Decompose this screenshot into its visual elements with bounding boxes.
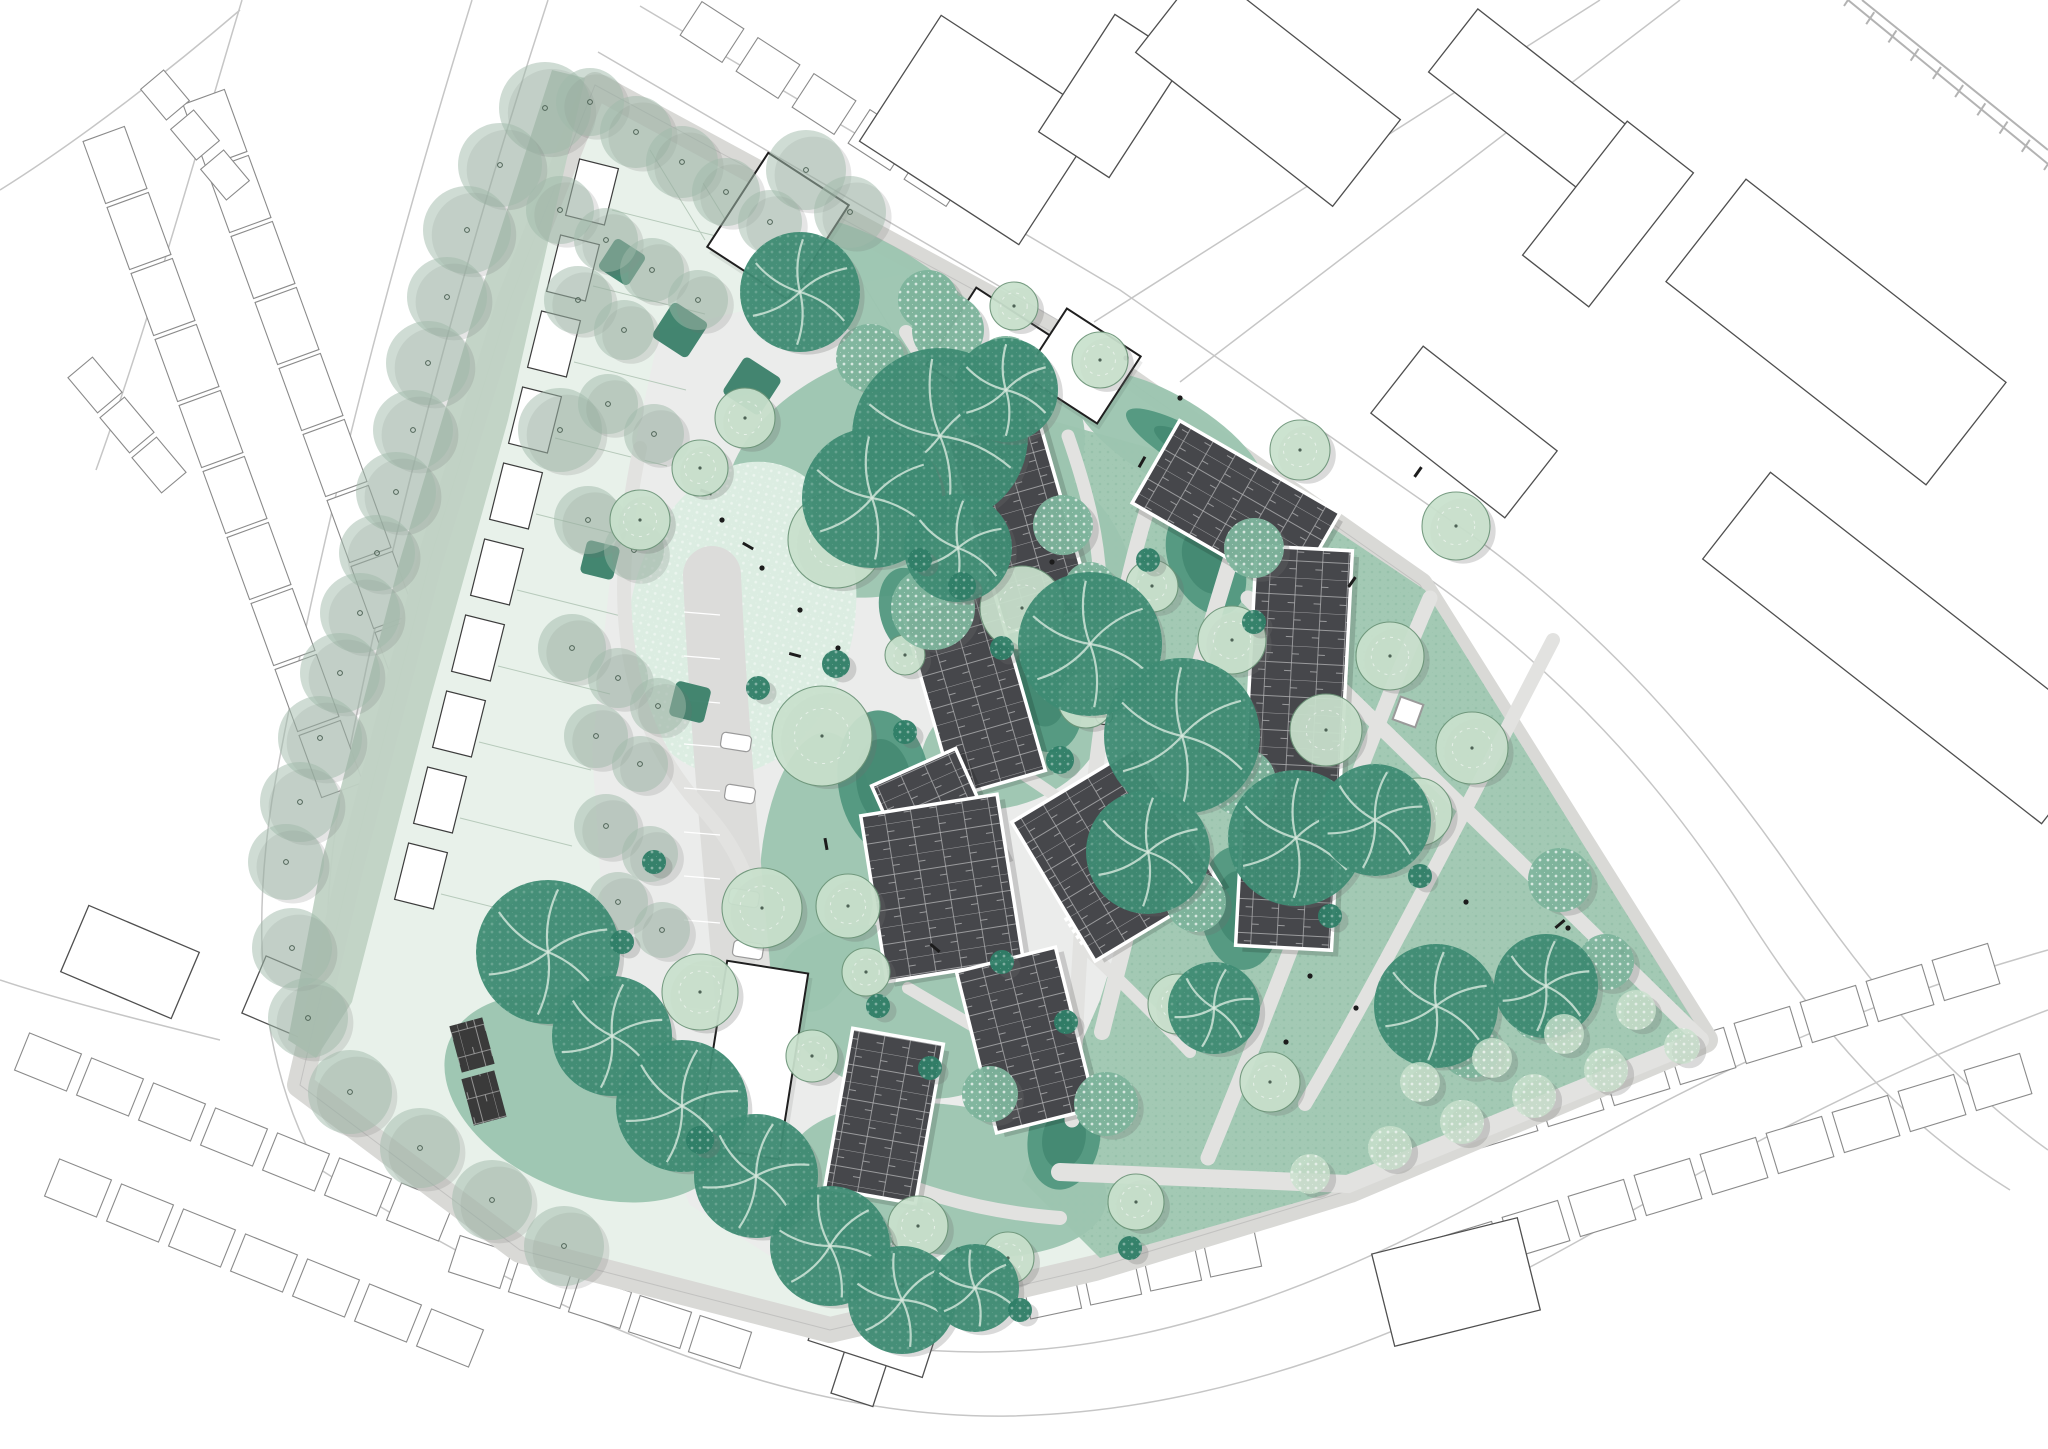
tree-trunk-mark bbox=[638, 518, 641, 521]
tree-trunk-mark bbox=[1268, 1080, 1271, 1083]
shrub-texture bbox=[1318, 904, 1342, 928]
orchard-tree-texture bbox=[1440, 1100, 1484, 1144]
shrub-texture bbox=[1046, 746, 1074, 774]
street-tree bbox=[630, 678, 686, 734]
person-marker bbox=[719, 517, 724, 522]
street-tree bbox=[452, 1160, 532, 1240]
person-marker bbox=[797, 607, 802, 612]
street-tree bbox=[814, 176, 886, 248]
street-tree bbox=[380, 1108, 460, 1188]
tree-trunk-mark bbox=[698, 990, 701, 993]
tree-trunk-mark bbox=[1230, 638, 1233, 641]
street-tree bbox=[386, 321, 470, 405]
person-marker bbox=[1283, 1039, 1288, 1044]
person-marker bbox=[1177, 395, 1182, 400]
tree-trunk-mark bbox=[1020, 606, 1023, 609]
person-marker bbox=[1565, 925, 1570, 930]
person-marker bbox=[1049, 559, 1054, 564]
tree-trunk-mark bbox=[743, 416, 746, 419]
orchard-tree-texture bbox=[1400, 1062, 1440, 1102]
tree-trunk-mark bbox=[1470, 746, 1473, 749]
stippled-tree-texture bbox=[962, 1066, 1018, 1122]
person-marker bbox=[1307, 973, 1312, 978]
tree-trunk-mark bbox=[903, 653, 906, 656]
shrub-texture bbox=[1242, 610, 1266, 634]
person-marker bbox=[759, 565, 764, 570]
tree-trunk-mark bbox=[760, 906, 763, 909]
shrub-texture bbox=[822, 650, 850, 678]
street-tree bbox=[524, 1206, 604, 1286]
orchard-tree-texture bbox=[1472, 1038, 1512, 1078]
plan-viewport bbox=[0, 0, 2048, 1449]
person-marker bbox=[835, 645, 840, 650]
shrub-texture bbox=[990, 636, 1014, 660]
shrub-texture bbox=[610, 930, 634, 954]
tree-trunk-mark bbox=[1098, 358, 1101, 361]
masterplan-svg bbox=[0, 0, 2048, 1449]
shrub-texture bbox=[1054, 1010, 1078, 1034]
tree-trunk-mark bbox=[1298, 448, 1301, 451]
person-marker bbox=[1463, 899, 1468, 904]
shrub-texture bbox=[918, 1056, 942, 1080]
street-tree bbox=[634, 902, 690, 958]
orchard-tree-texture bbox=[1664, 1028, 1700, 1064]
shrub-texture bbox=[893, 720, 917, 744]
shrub-texture bbox=[1408, 864, 1432, 888]
street-tree bbox=[668, 270, 728, 330]
orchard-tree-texture bbox=[1512, 1074, 1556, 1118]
shrub-texture bbox=[908, 548, 932, 572]
tree-trunk-mark bbox=[1012, 304, 1015, 307]
shrub-texture bbox=[1118, 1236, 1142, 1260]
orchard-tree-texture bbox=[1544, 1014, 1584, 1054]
stippled-tree-texture bbox=[1033, 495, 1093, 555]
street-tree bbox=[248, 824, 324, 900]
orchard-tree-texture bbox=[1584, 1048, 1628, 1092]
street-tree bbox=[268, 978, 348, 1058]
shrub-texture bbox=[866, 994, 890, 1018]
street-tree bbox=[612, 736, 668, 792]
street-tree bbox=[308, 1050, 392, 1134]
shrub-texture bbox=[746, 676, 770, 700]
tree-trunk-mark bbox=[698, 466, 701, 469]
tree-trunk-mark bbox=[1324, 728, 1327, 731]
tree-trunk-mark bbox=[864, 970, 867, 973]
orchard-tree-texture bbox=[1368, 1126, 1412, 1170]
tree-trunk-mark bbox=[846, 904, 849, 907]
stippled-tree-texture bbox=[1224, 518, 1284, 578]
tree-trunk-mark bbox=[820, 734, 823, 737]
street-tree bbox=[594, 300, 654, 360]
tree-trunk-mark bbox=[1388, 654, 1391, 657]
shrub-texture bbox=[1136, 548, 1160, 572]
tree-trunk-mark bbox=[1134, 1200, 1137, 1203]
shrub-texture bbox=[686, 1126, 714, 1154]
tree-trunk-mark bbox=[916, 1224, 919, 1227]
shrub-texture bbox=[990, 950, 1014, 974]
tree-trunk-mark bbox=[1150, 584, 1153, 587]
stippled-tree-texture bbox=[1074, 1072, 1138, 1136]
orchard-tree-texture bbox=[1616, 990, 1656, 1030]
tree-trunk-mark bbox=[1454, 524, 1457, 527]
orchard-tree-texture bbox=[1290, 1154, 1330, 1194]
shrub-texture bbox=[642, 850, 666, 874]
person-marker bbox=[1353, 1005, 1358, 1010]
tree-trunk-mark bbox=[810, 1054, 813, 1057]
bench bbox=[825, 838, 827, 850]
shrub-texture bbox=[948, 572, 976, 600]
shrub-texture bbox=[1008, 1298, 1032, 1322]
stippled-tree-texture bbox=[1528, 848, 1592, 912]
street-tree bbox=[252, 908, 332, 988]
